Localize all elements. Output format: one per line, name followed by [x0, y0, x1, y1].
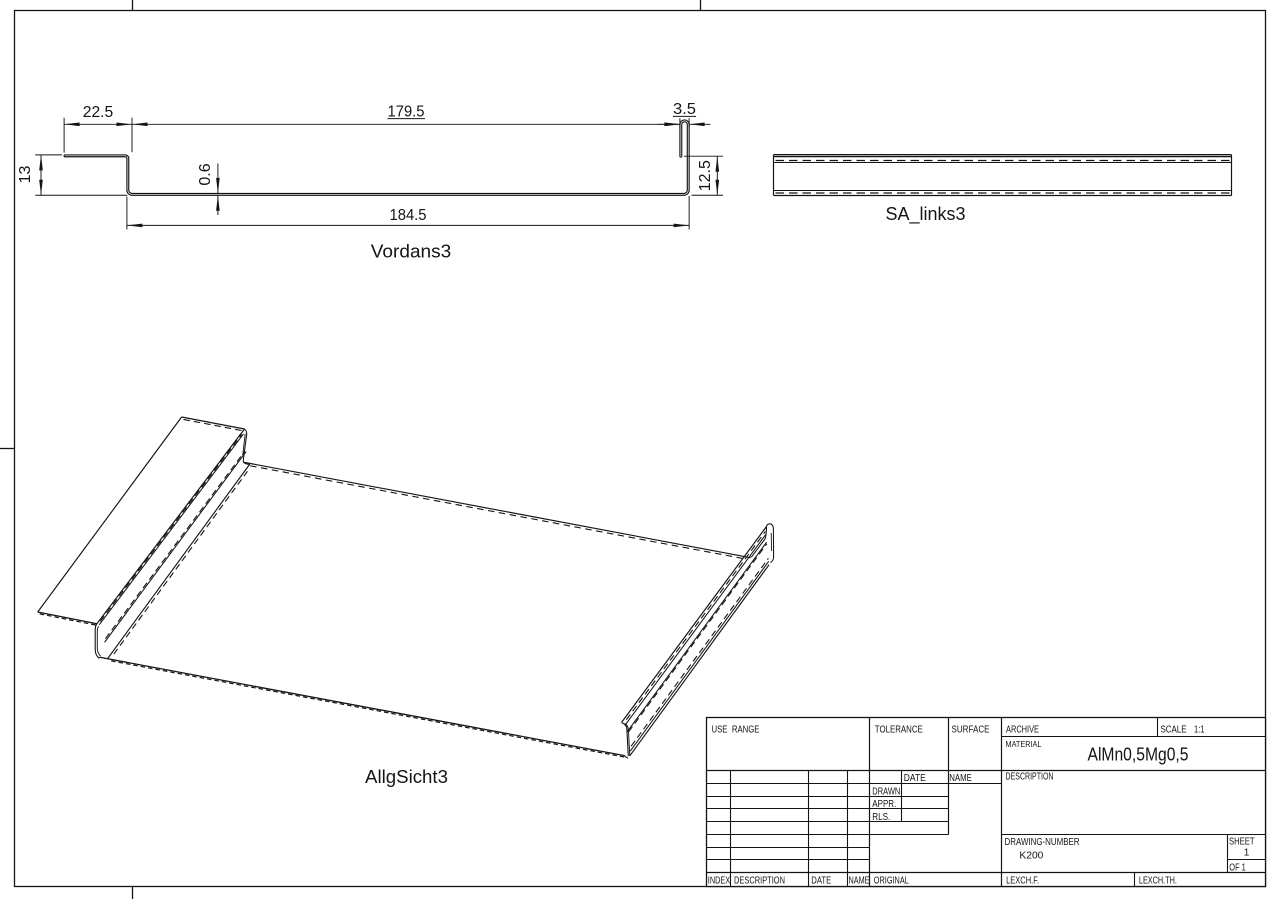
svg-text:AlMn0,5Mg0,5: AlMn0,5Mg0,5 — [1088, 743, 1189, 764]
svg-text:INDEX: INDEX — [708, 875, 731, 886]
svg-text:NAME: NAME — [849, 875, 870, 886]
svg-text:K200: K200 — [1019, 851, 1043, 862]
svg-text:1:1: 1:1 — [1194, 725, 1205, 736]
svg-text:APPR.: APPR. — [872, 799, 896, 810]
svg-text:12.5: 12.5 — [697, 160, 714, 191]
svg-text:ARCHIVE: ARCHIVE — [1006, 725, 1039, 736]
svg-text:SURFACE: SURFACE — [952, 725, 990, 736]
svg-text:SA_links3: SA_links3 — [886, 204, 966, 225]
svg-text:RLS.: RLS. — [872, 812, 890, 823]
svg-text:ORIGINAL: ORIGINAL — [874, 875, 909, 886]
svg-text:DRAWING-NUMBER: DRAWING-NUMBER — [1005, 837, 1080, 848]
svg-text:TOLERANCE: TOLERANCE — [875, 725, 923, 736]
svg-text:AllgSicht3: AllgSicht3 — [365, 767, 448, 787]
svg-text:179.5: 179.5 — [388, 104, 425, 121]
svg-text:LEXCH.F.: LEXCH.F. — [1006, 875, 1039, 886]
svg-text:22.5: 22.5 — [83, 104, 114, 121]
svg-text:DESCRIPTION: DESCRIPTION — [734, 875, 785, 886]
svg-text:13: 13 — [17, 166, 34, 184]
svg-text:Vordans3: Vordans3 — [371, 241, 452, 261]
svg-text:1: 1 — [1244, 847, 1250, 858]
svg-text:SHEET: SHEET — [1229, 837, 1255, 848]
svg-text:SCALE: SCALE — [1161, 725, 1187, 736]
svg-text:184.5: 184.5 — [390, 207, 427, 224]
svg-text:0.6: 0.6 — [197, 163, 214, 185]
svg-text:DESCRIPTION: DESCRIPTION — [1006, 772, 1054, 783]
svg-text:NAME: NAME — [949, 773, 972, 784]
svg-text:3.5: 3.5 — [673, 101, 696, 118]
svg-text:DRAWN: DRAWN — [872, 786, 900, 797]
svg-text:OF 1: OF 1 — [1229, 863, 1246, 874]
svg-text:LEXCH.TH.: LEXCH.TH. — [1139, 875, 1177, 886]
svg-text:DATE: DATE — [811, 875, 831, 886]
svg-text:DATE: DATE — [904, 773, 926, 784]
svg-text:USE RANGE: USE RANGE — [712, 725, 760, 736]
svg-text:MATERIAL: MATERIAL — [1006, 739, 1042, 749]
